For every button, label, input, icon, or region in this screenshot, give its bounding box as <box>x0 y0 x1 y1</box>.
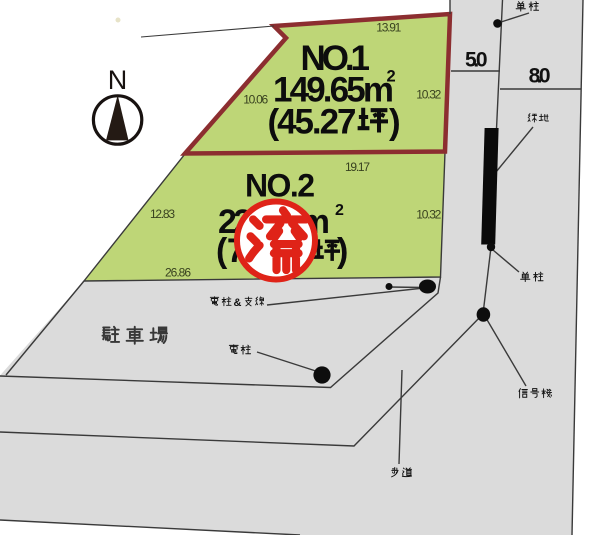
svg-text:8.0: 8.0 <box>529 65 551 88</box>
svg-text:2: 2 <box>387 67 396 85</box>
svg-text:19.17: 19.17 <box>345 160 370 174</box>
svg-text:NO.2: NO.2 <box>245 168 315 204</box>
svg-text:2: 2 <box>335 202 344 219</box>
svg-text:10.32: 10.32 <box>416 208 441 222</box>
svg-text:10.06: 10.06 <box>243 92 268 106</box>
svg-text:&: & <box>234 297 242 309</box>
svg-text:12.83: 12.83 <box>150 207 175 221</box>
svg-text:10.32: 10.32 <box>416 88 441 102</box>
svg-text:N: N <box>108 65 128 95</box>
svg-text:): ) <box>389 103 401 142</box>
svg-text:(45.27: (45.27 <box>268 103 357 142</box>
svg-text:13.91: 13.91 <box>376 21 401 35</box>
svg-text:26.86: 26.86 <box>165 266 191 280</box>
svg-text:5.0: 5.0 <box>465 49 488 72</box>
